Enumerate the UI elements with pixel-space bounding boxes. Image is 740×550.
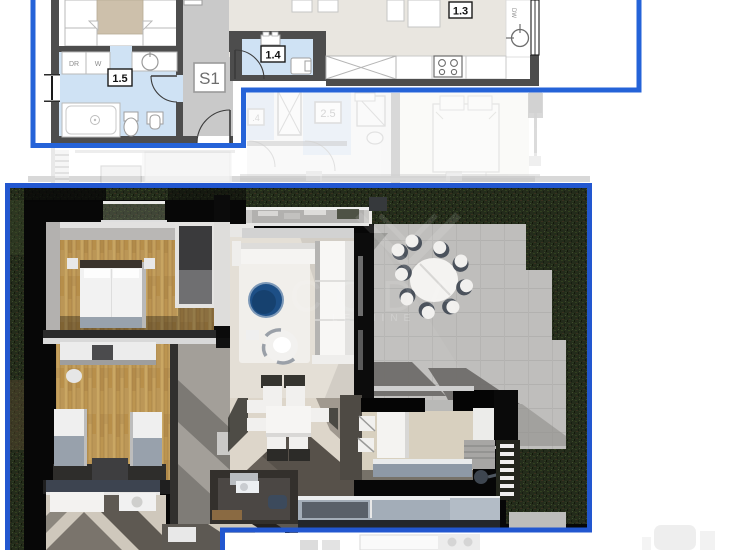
svg-text:S1: S1 [199, 69, 220, 88]
svg-text:1.4: 1.4 [265, 50, 281, 62]
svg-text:.4: .4 [252, 113, 260, 123]
svg-text:DW: DW [510, 8, 516, 18]
svg-text:2.5: 2.5 [320, 108, 335, 120]
svg-text:DR: DR [69, 61, 79, 68]
svg-text:1.3: 1.3 [453, 6, 468, 18]
svg-text:1.5: 1.5 [112, 73, 127, 85]
svg-text:LETNINE: LETNINE [332, 313, 416, 324]
svg-text:W: W [95, 61, 102, 68]
